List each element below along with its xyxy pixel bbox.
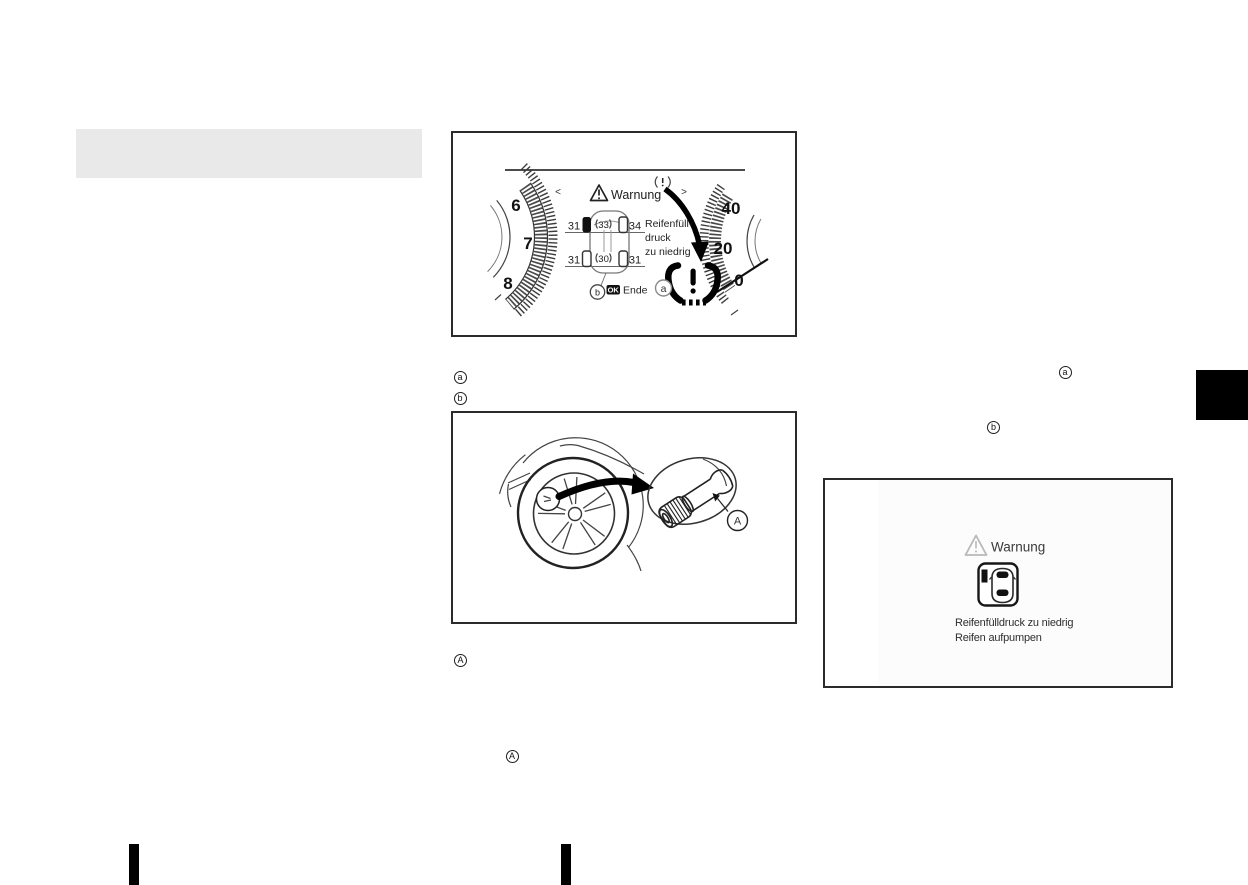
callout-letter: b — [457, 394, 462, 403]
speedo-label-40: 40 — [722, 199, 741, 218]
speedo-label-20: 20 — [714, 239, 733, 258]
tire-front-right — [619, 217, 628, 233]
chevron-left-icon: < — [555, 187, 561, 198]
tach-label-7: 7 — [523, 234, 532, 253]
body-ref-a-right: a — [1059, 366, 1072, 379]
tach-label-8: 8 — [503, 274, 512, 293]
display-message-line2: druck — [645, 232, 671, 244]
svg-text:b: b — [595, 287, 600, 297]
print-registration-mark — [561, 844, 571, 885]
figure-instrument-cluster: 6 7 8 40 20 0 < > Warnung — [451, 131, 797, 337]
low-tire-position-icon — [979, 564, 1018, 606]
speedo-label-0: 0 — [734, 271, 743, 290]
callout-list-item-b: b — [454, 392, 467, 405]
body-ref-A-second: A — [506, 750, 519, 763]
svg-text:OK: OK — [608, 285, 620, 294]
pressure-rear-center: 30 — [598, 254, 609, 265]
figure-warning-display: Warnung Reifenfülldruck zu niedrig Reife… — [823, 478, 1173, 688]
display-message-line1: Reifenfüll- — [645, 218, 693, 230]
valve-location-circle — [537, 488, 560, 511]
display-message-line2: Reifen aufpumpen — [955, 632, 1042, 644]
callout-letter: b — [991, 423, 996, 432]
pressure-front-right: 34 — [629, 221, 641, 233]
callout-b-marker: b — [590, 285, 604, 299]
chevron-right-icon: > — [681, 187, 687, 198]
callout-letter: a — [1062, 368, 1067, 377]
pressure-rear-right: 31 — [629, 255, 641, 267]
end-label: Ende — [623, 285, 648, 297]
tach-label-6: 6 — [511, 196, 520, 215]
figure-wheel-valve: A — [451, 411, 797, 624]
low-tire-indicator-bar — [982, 570, 988, 583]
warning-title: Warnung — [611, 188, 661, 202]
manual-page: 6 7 8 40 20 0 < > Warnung — [0, 0, 1248, 885]
display-warning-title: Warnung — [991, 540, 1045, 555]
callout-list-item-a: a — [454, 371, 467, 384]
pressure-front-left: 31 — [568, 221, 580, 233]
tire-front-left-low — [583, 217, 592, 233]
section-heading-placeholder — [76, 129, 422, 178]
svg-text:A: A — [734, 516, 742, 528]
svg-text:a: a — [661, 283, 667, 295]
pressure-front-center: 33 — [598, 220, 609, 231]
print-registration-mark — [129, 844, 139, 885]
tire-rear-right — [619, 251, 628, 267]
body-ref-b-right: b — [987, 421, 1000, 434]
tire-rear-left — [583, 251, 592, 267]
ok-button-badge: OK — [607, 285, 621, 295]
callout-a-marker: a — [656, 280, 672, 296]
section-thumb-tab — [1196, 370, 1248, 420]
display-message-line3: zu niedrig — [645, 246, 691, 258]
body-ref-A-first: A — [454, 654, 467, 667]
callout-letter: A — [457, 656, 463, 665]
display-message-line1: Reifenfülldruck zu niedrig — [955, 617, 1073, 629]
callout-letter: a — [457, 373, 462, 382]
callout-letter: A — [509, 752, 515, 761]
pressure-rear-left: 31 — [568, 255, 580, 267]
